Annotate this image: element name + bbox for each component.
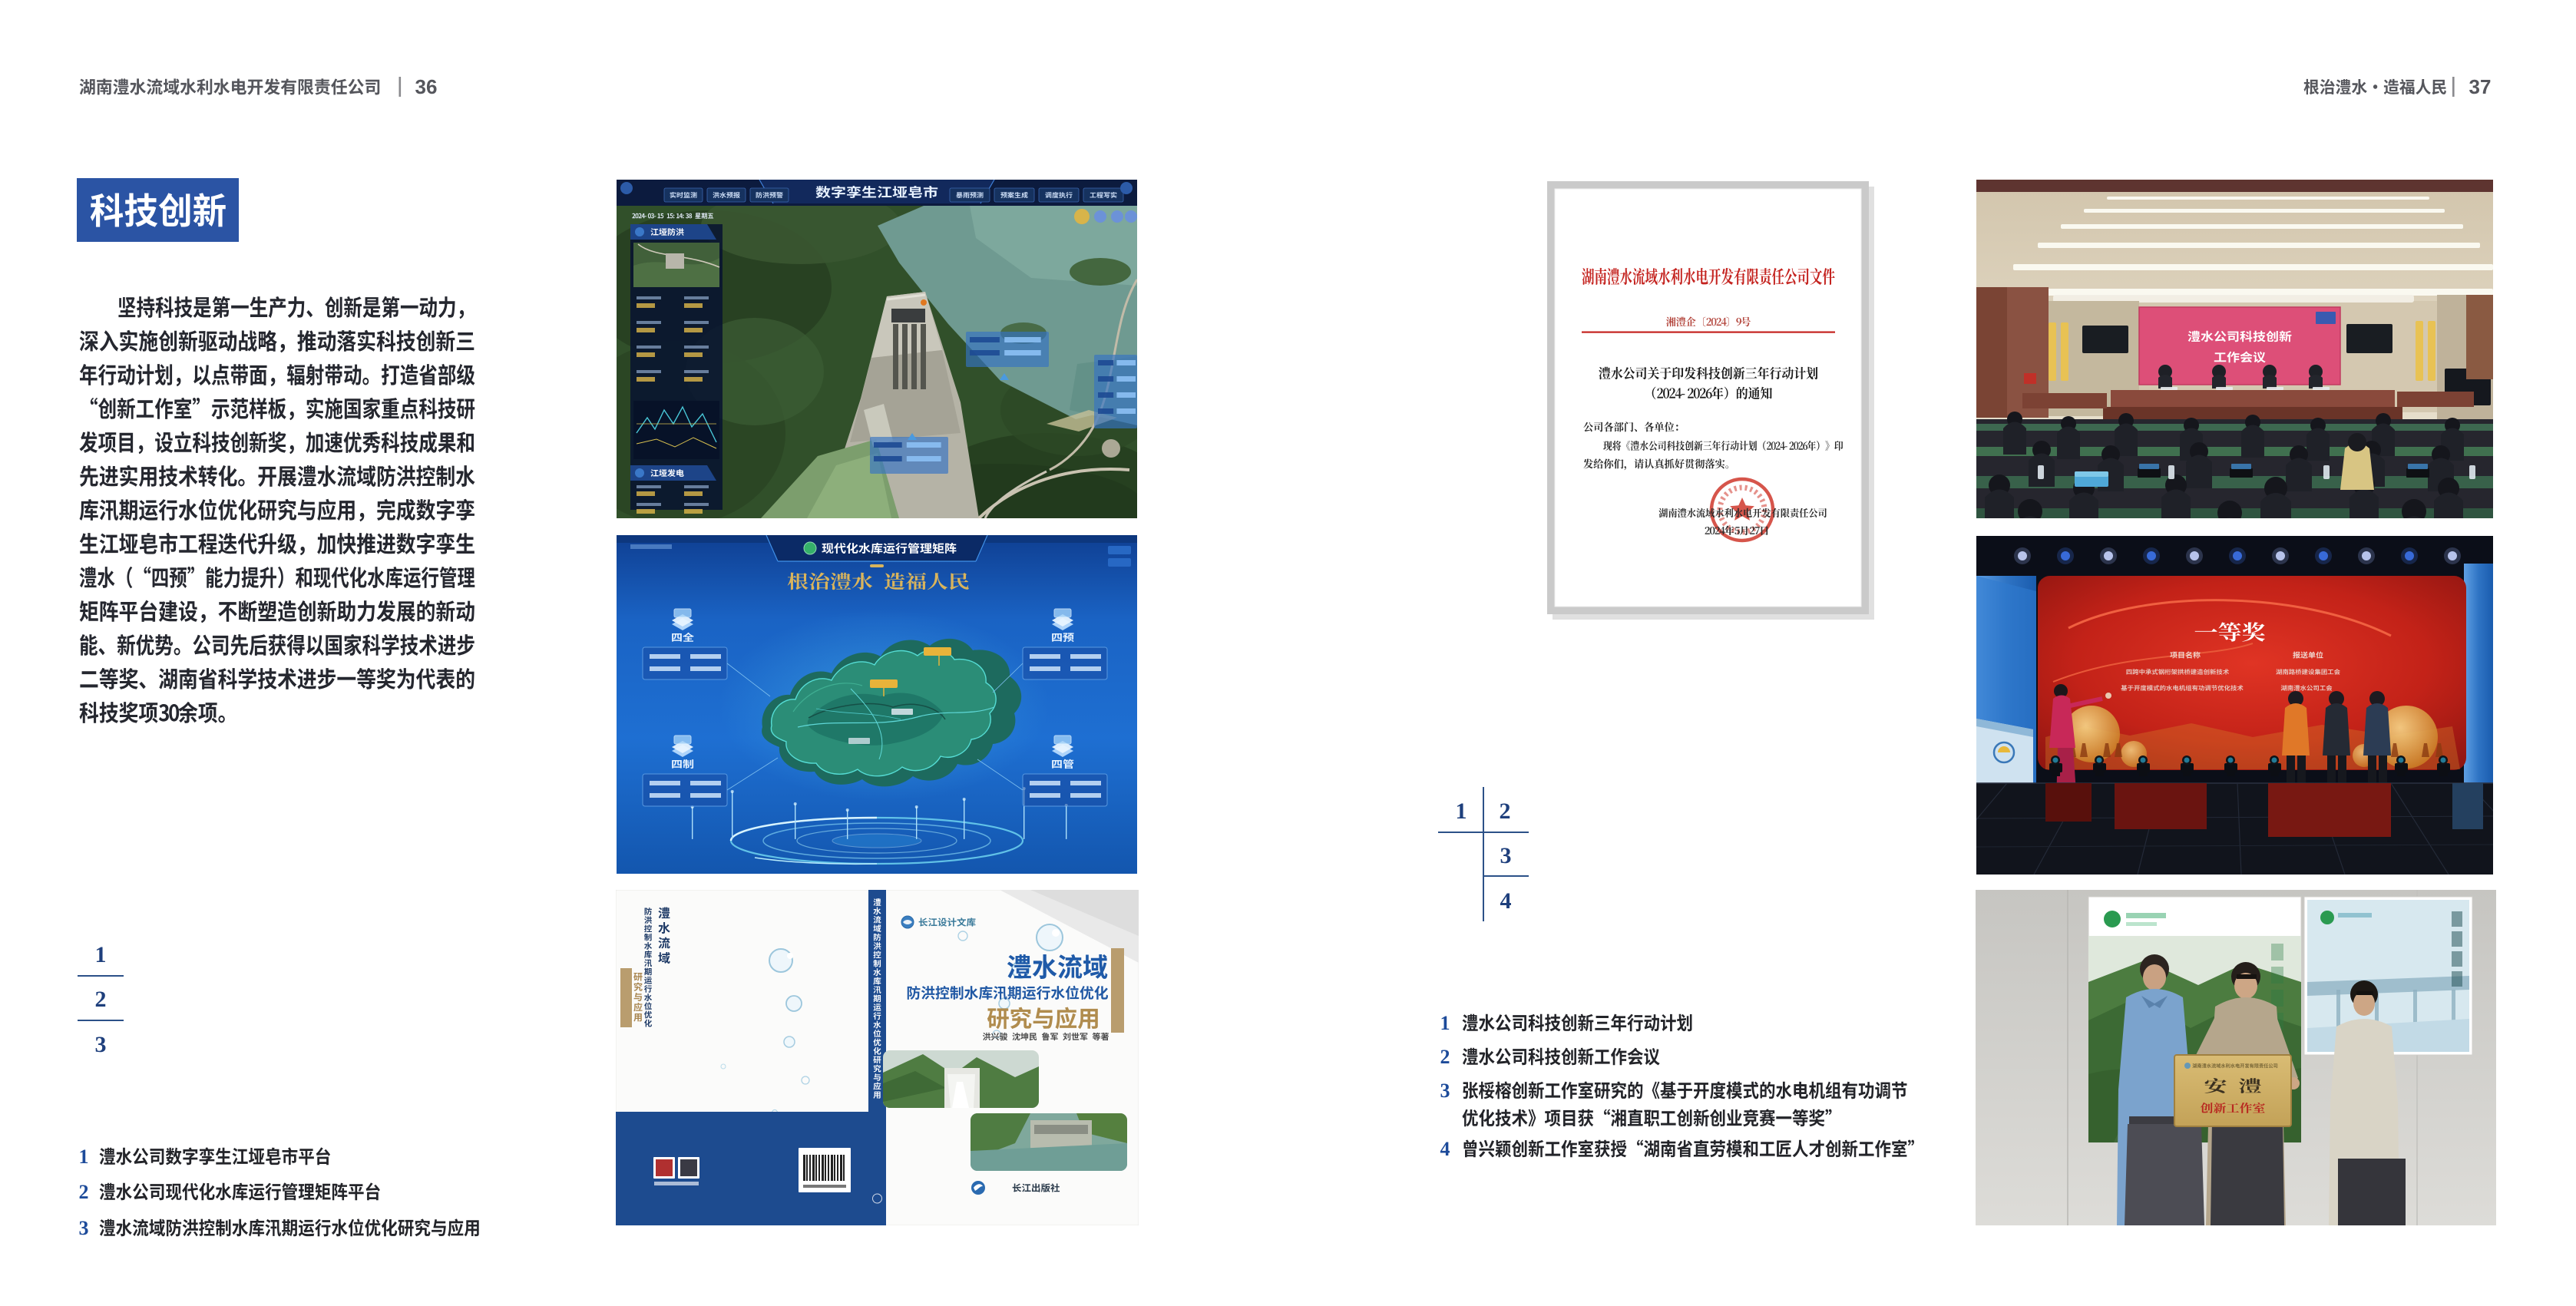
svg-text:2: 2 xyxy=(79,1181,89,1203)
svg-text:3: 3 xyxy=(79,1217,89,1239)
svg-text:1: 1 xyxy=(79,1146,89,1168)
svg-text:4: 4 xyxy=(1440,1138,1450,1160)
svg-text:3: 3 xyxy=(95,1032,107,1057)
svg-text:3: 3 xyxy=(1500,843,1512,868)
svg-text:37: 37 xyxy=(2469,75,2492,98)
svg-text:1: 1 xyxy=(1456,798,1467,824)
svg-text:4: 4 xyxy=(1500,888,1512,914)
svg-text:1: 1 xyxy=(1440,1012,1450,1034)
svg-text:2: 2 xyxy=(1500,798,1511,824)
svg-text:2: 2 xyxy=(1440,1046,1450,1068)
svg-text:36: 36 xyxy=(415,75,438,98)
svg-text:1: 1 xyxy=(95,942,107,967)
svg-text:3: 3 xyxy=(1440,1080,1450,1102)
svg-text:2: 2 xyxy=(95,987,107,1012)
